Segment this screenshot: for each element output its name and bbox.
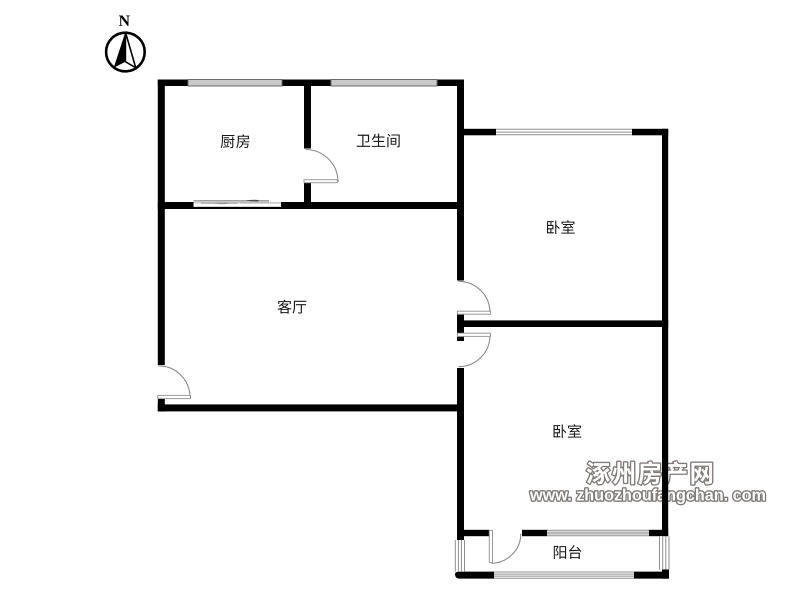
- svg-text:www. zhuozhoufangchan. com: www. zhuozhoufangchan. com: [529, 487, 766, 505]
